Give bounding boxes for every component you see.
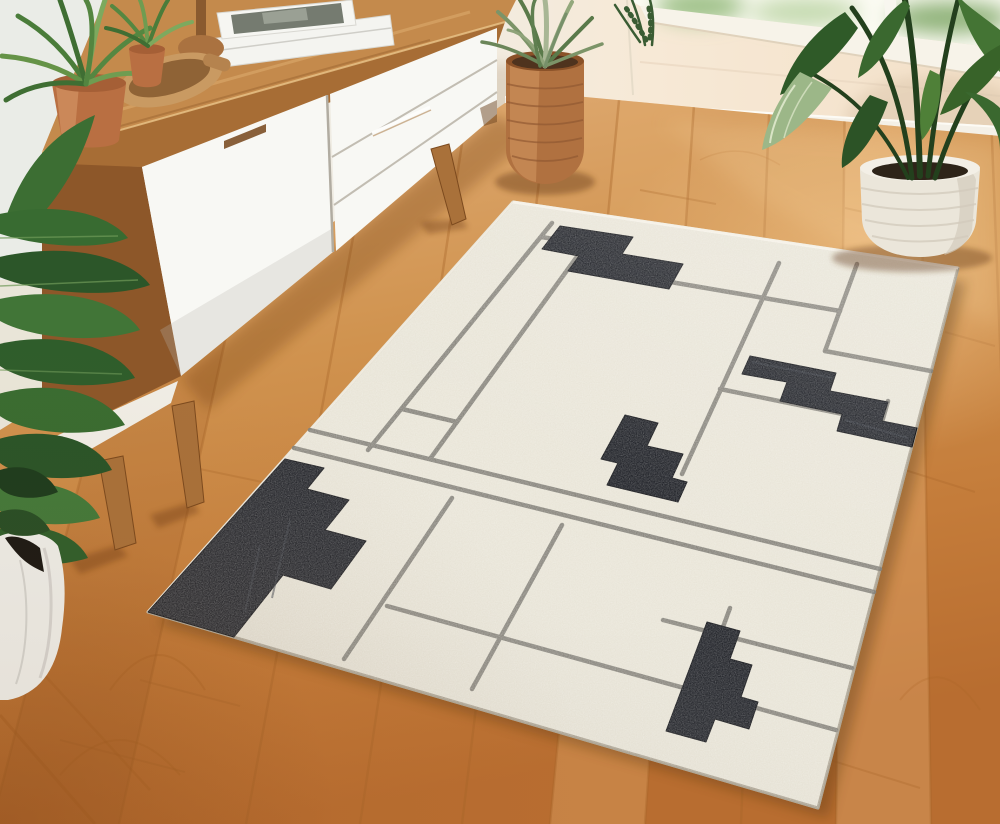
room-scene-svg <box>0 0 1000 824</box>
room-photo <box>0 0 1000 824</box>
photo-vignette <box>0 0 1000 824</box>
